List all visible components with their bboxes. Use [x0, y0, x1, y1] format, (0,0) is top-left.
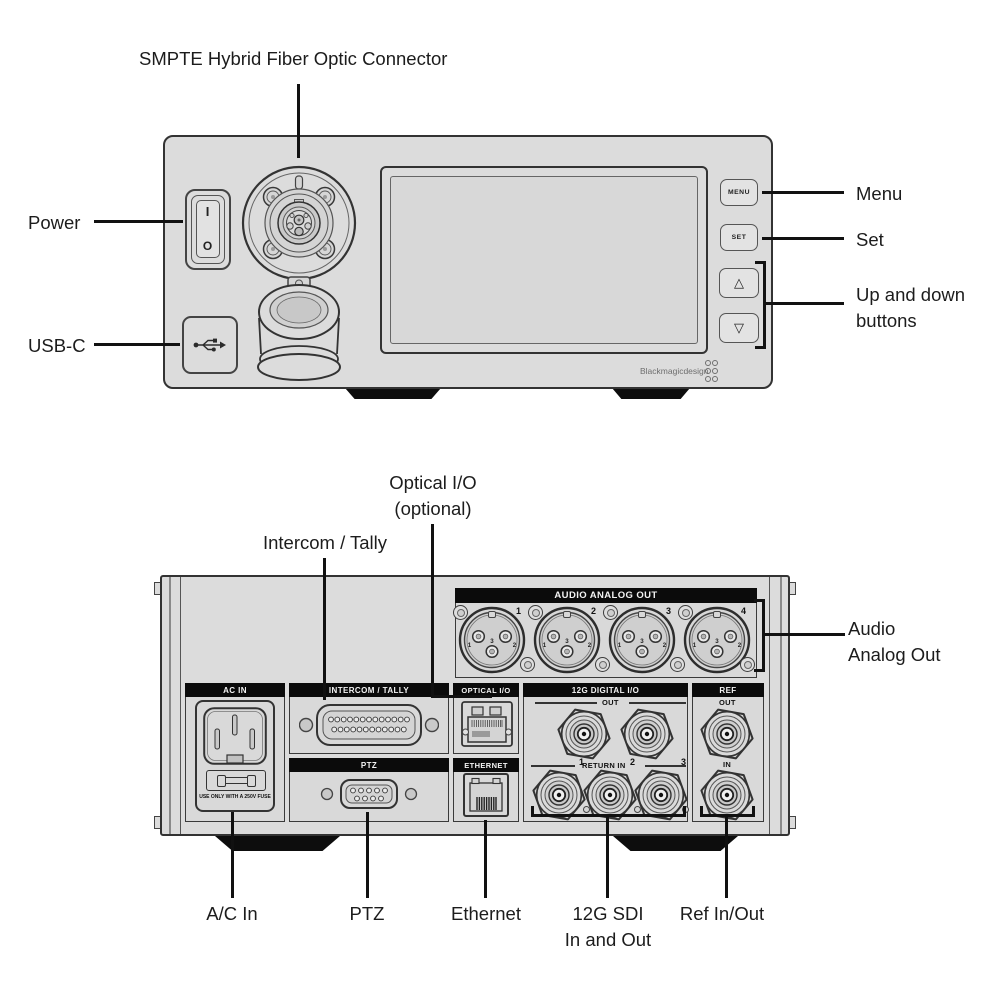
- callout-optical-line-h: [431, 695, 492, 698]
- callout-sdi-line: [606, 814, 609, 898]
- svg-text:2: 2: [663, 642, 667, 649]
- screw-icon: [670, 657, 685, 672]
- mount-hole: [583, 806, 590, 813]
- rear-foot-right: [613, 836, 738, 851]
- callout-optical-line-v: [431, 524, 434, 698]
- callout-set-line: [762, 237, 844, 240]
- xlr-connector-1: 1 3 2: [458, 606, 526, 674]
- ethernet-header: ETHERNET: [453, 758, 519, 772]
- callout-audio-label: Audio Analog Out: [848, 616, 941, 668]
- svg-text:2: 2: [588, 642, 592, 649]
- screw-icon: [453, 605, 468, 620]
- screw-icon: [595, 657, 610, 672]
- power-switch: I O: [185, 189, 231, 270]
- screw-icon: [528, 605, 543, 620]
- xlr-connector-3: 1 3 2: [608, 606, 676, 674]
- callout-ptz-label: PTZ: [307, 901, 427, 927]
- callout-acin-label: A/C In: [172, 901, 292, 927]
- device-diagram: SMPTE Hybrid Fiber Optic Connector Power…: [0, 0, 1000, 1000]
- callout-ethernet-line: [484, 820, 487, 898]
- ptz-header: PTZ: [289, 758, 449, 772]
- down-button: ▽: [719, 313, 759, 343]
- rule: [645, 765, 686, 767]
- power-off-mark: O: [203, 240, 212, 252]
- acin-header: AC IN: [185, 683, 285, 697]
- ref-bracket-tick-right: [752, 806, 755, 814]
- up-button: △: [719, 268, 759, 298]
- bnc-number: 2: [630, 757, 635, 767]
- rear-rail-right: [769, 577, 788, 834]
- lcd-screen: [380, 166, 708, 354]
- mount-hole: [634, 806, 641, 813]
- up-arrow-icon: △: [734, 275, 744, 291]
- callout-sdi-label: 12G SDI In and Out: [548, 901, 668, 953]
- bnc-number: 3: [681, 757, 686, 767]
- sfp-optical-module: [459, 700, 515, 748]
- power-switch-bezel: I O: [191, 195, 225, 264]
- usbc-port: [182, 316, 238, 374]
- rear-rail-left: [162, 577, 181, 834]
- audio-bracket-tick-top: [754, 599, 762, 602]
- fuse-warning-text: USE ONLY WITH A 250V FUSE: [197, 794, 273, 800]
- acin-assembly: USE ONLY WITH A 250V FUSE: [195, 700, 275, 812]
- callout-optical-label: Optical I/O (optional): [353, 470, 513, 522]
- callout-ref-label: Ref In/Out: [662, 901, 782, 927]
- callout-intercom-label: Intercom / Tally: [245, 530, 405, 556]
- callout-smpte-label: SMPTE Hybrid Fiber Optic Connector: [139, 46, 447, 72]
- svg-text:2: 2: [513, 642, 517, 649]
- bnc-sdi-out-2: [620, 707, 674, 761]
- svg-text:3: 3: [490, 638, 494, 645]
- updown-bracket-tick-top: [755, 261, 763, 264]
- svg-text:3: 3: [640, 638, 644, 645]
- callout-ref-line: [725, 814, 728, 898]
- updown-bracket-tick-bottom: [755, 346, 763, 349]
- screw-icon: [678, 605, 693, 620]
- callout-audio-line: [765, 633, 845, 636]
- xlr-connector-2: 1 3 2: [533, 606, 601, 674]
- callout-usbc-line: [94, 343, 180, 346]
- svg-text:1: 1: [618, 642, 622, 649]
- svg-text:1: 1: [543, 642, 547, 649]
- svg-text:1: 1: [468, 642, 472, 649]
- usb-icon: [192, 335, 228, 355]
- audio-analog-out-header: AUDIO ANALOG OUT: [455, 588, 757, 603]
- updown-bracket: [763, 261, 766, 349]
- callout-intercom-line: [323, 558, 326, 700]
- callout-updown-line: [766, 302, 844, 305]
- svg-text:2: 2: [738, 642, 742, 649]
- power-on-mark: I: [206, 206, 210, 218]
- screw-icon: [740, 657, 755, 672]
- callout-acin-line: [231, 812, 234, 898]
- bnc-number: 1: [579, 757, 584, 767]
- svg-text:3: 3: [715, 638, 719, 645]
- bnc-ref-out: [700, 707, 754, 761]
- callout-updown-label: Up and down buttons: [856, 282, 965, 334]
- brand-logo-icon: [705, 360, 721, 384]
- smpte-fiber-connector: [238, 160, 363, 392]
- db9-connector: [319, 777, 419, 811]
- ref-header: REF: [692, 683, 764, 697]
- svg-text:3: 3: [565, 638, 569, 645]
- screw-icon: [520, 657, 535, 672]
- callout-power-label: Power: [28, 210, 80, 236]
- callout-menu-line: [762, 191, 844, 194]
- menu-button: MENU: [720, 179, 758, 206]
- rj45-port: [462, 772, 510, 818]
- audio-bracket-tick-bottom: [754, 669, 762, 672]
- set-button: SET: [720, 224, 758, 251]
- digital-header: 12G DIGITAL I/O: [523, 683, 688, 697]
- callout-power-line: [94, 220, 183, 223]
- callout-ethernet-label: Ethernet: [426, 901, 546, 927]
- bnc-sdi-out-1: [557, 707, 611, 761]
- callout-usbc-label: USB-C: [28, 333, 86, 359]
- fuse-holder: [206, 770, 266, 791]
- rule: [629, 702, 686, 704]
- ref-bracket-tick-left: [700, 806, 703, 814]
- screw-icon: [603, 605, 618, 620]
- sdi-bracket-tick-right: [683, 806, 686, 814]
- brand-text: Blackmagicdesign: [640, 366, 709, 376]
- callout-smpte-line: [297, 84, 300, 158]
- digital-out-label: OUT: [602, 698, 619, 707]
- lcd-screen-inner: [390, 176, 698, 344]
- svg-text:1: 1: [693, 642, 697, 649]
- ref-out-label: OUT: [719, 698, 736, 707]
- intercom-header: INTERCOM / TALLY: [289, 683, 449, 697]
- power-rocker: I O: [196, 200, 220, 258]
- front-foot-right: [612, 388, 690, 399]
- down-arrow-icon: ▽: [734, 320, 744, 336]
- db25-connector: [299, 702, 439, 748]
- callout-set-label: Set: [856, 227, 884, 253]
- sdi-bracket-tick-left: [531, 806, 534, 814]
- rule: [535, 702, 597, 704]
- callout-menu-label: Menu: [856, 181, 902, 207]
- iec-power-inlet: [203, 707, 267, 765]
- rule: [531, 765, 575, 767]
- callout-ptz-line: [366, 812, 369, 898]
